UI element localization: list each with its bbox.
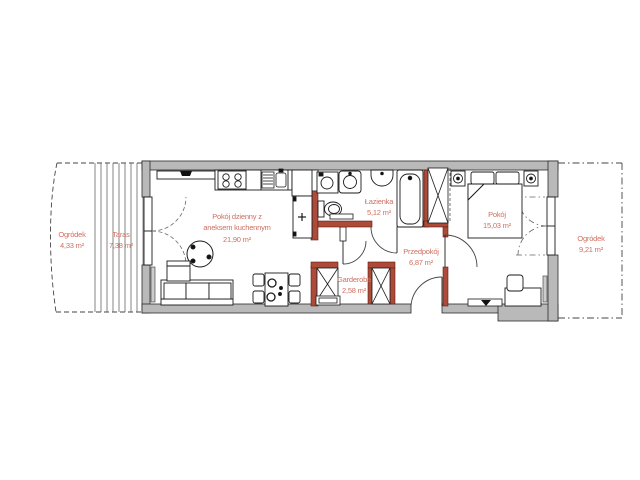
room-area: 15,03 m²	[457, 220, 537, 231]
tv-icon	[180, 171, 192, 176]
room-name: Taras	[81, 229, 161, 240]
bedroom-wardrobe	[428, 168, 450, 223]
room-label-living: Pokój dzienny z aneksem kuchennym 21,90 …	[177, 211, 297, 245]
tv-console	[157, 171, 215, 179]
room-area: 21,90 m²	[177, 234, 297, 245]
tv-shelf-bedroom	[468, 299, 502, 306]
shoe-cabinet	[316, 296, 340, 305]
entrance-door	[411, 277, 442, 306]
room-name: Pokój dzienny z	[177, 211, 297, 222]
room-area: 6,87 m²	[381, 257, 461, 268]
room-label-terrace: Taras 7,38 m²	[81, 229, 161, 252]
room-name: aneksem kuchennym	[177, 222, 297, 233]
desk-chair	[507, 275, 523, 291]
coffee-table	[187, 241, 213, 267]
radiator-living	[151, 267, 155, 302]
wall-basin	[371, 170, 393, 186]
kitchen-stove	[218, 171, 246, 189]
room-label-bathroom: Łazienka 5,12 m²	[339, 196, 419, 219]
room-area: 9,21 m²	[551, 244, 631, 255]
room-label-wardrobe: Garderoba 2,58 m²	[314, 274, 394, 297]
room-label-bedroom: Pokój 15,03 m²	[457, 209, 537, 232]
room-area: 5,12 m²	[339, 207, 419, 218]
room-label-hallway: Przedpokój 6,87 m²	[381, 246, 461, 269]
kitchen-sink	[262, 169, 286, 188]
floor-plan: Ogródek 4,33 m² Taras 7,38 m² Pokój dzie…	[0, 0, 640, 480]
sofa	[161, 261, 233, 305]
nightstand-right	[524, 171, 538, 186]
living-hall-door	[343, 241, 366, 264]
washing-machine	[317, 172, 338, 193]
nightstand-left	[451, 171, 465, 186]
room-name: Garderoba	[314, 274, 394, 285]
room-area: 7,38 m²	[81, 240, 161, 251]
room-name: Przedpokój	[381, 246, 461, 257]
room-label-garden-right: Ogródek 9,21 m²	[551, 233, 631, 256]
room-name: Pokój	[457, 209, 537, 220]
dining-table	[253, 273, 300, 306]
room-name: Ogródek	[551, 233, 631, 244]
radiator-bedroom	[543, 276, 547, 302]
washbasin-counter	[339, 171, 361, 193]
room-area: 2,58 m²	[314, 285, 394, 296]
room-name: Łazienka	[339, 196, 419, 207]
desk	[505, 275, 541, 306]
